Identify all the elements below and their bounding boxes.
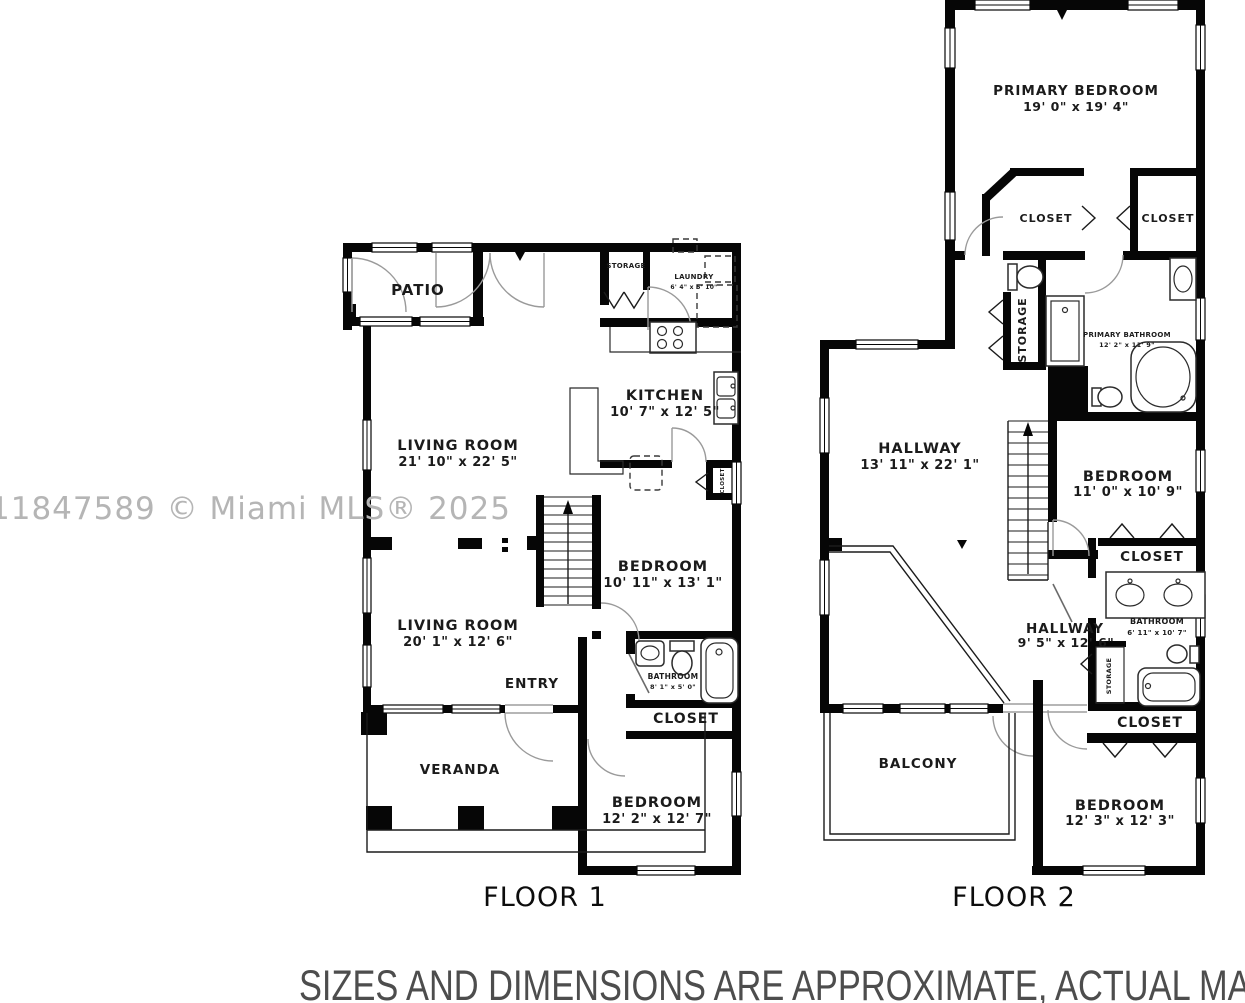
room-label-patio: PATIO (391, 281, 445, 299)
room-label-laundry: LAUNDRY (674, 273, 714, 281)
floorplan-image: PATIO STORAGE LAUNDRY 6' 4" x 5' 10" KIT… (0, 0, 1245, 1003)
room-dims-bathroom-f2: 6' 11" x 10' 7" (1127, 629, 1187, 637)
floor2-title: FLOOR 2 (952, 882, 1076, 913)
room-label-bathroom-f1: BATHROOM (648, 672, 699, 681)
room-label-closet-kitchen: CLOSET (720, 468, 726, 493)
room-dims-primary-bedroom: 19' 0" x 19' 4" (1023, 99, 1129, 114)
room-dims-hallway-small: 9' 5" x 12' 6" (1018, 635, 1115, 650)
room-label-living-lower: LIVING ROOM (397, 618, 519, 634)
room-dims-bedroom-mid-f2: 11' 0" x 10' 9" (1073, 485, 1183, 500)
room-label-closet-f1: CLOSET (653, 711, 719, 727)
room-label-storage-bath: STORAGE (1016, 297, 1029, 362)
wall-tick (515, 252, 525, 261)
room-label-primary-bedroom: PRIMARY BEDROOM (993, 83, 1159, 99)
floor2-walls (820, 0, 1205, 875)
room-label-veranda: VERANDA (420, 762, 500, 778)
room-dims-bedroom-bottom-f2: 12' 3" x 12' 3" (1065, 814, 1175, 829)
room-label-living-upper: LIVING ROOM (397, 438, 519, 454)
floor2-stairs (1008, 421, 1048, 580)
floor2-balcony-outline (824, 713, 1015, 840)
room-label-balcony: BALCONY (879, 756, 958, 772)
floor1-title: FLOOR 1 (483, 882, 607, 913)
room-dims-hallway-main: 13' 11" x 22' 1" (860, 458, 979, 473)
room-label-bedroom-mid-f1: BEDROOM (618, 559, 708, 575)
disclaimer-text: SIZES AND DIMENSIONS ARE APPROXIMATE, AC… (299, 962, 1245, 1003)
room-dims-bathroom-f1: 8' 1" x 5' 0" (650, 683, 696, 691)
floor1-stairs (544, 497, 592, 605)
room-label-closet-left: CLOSET (1020, 212, 1073, 225)
room-label-primary-bathroom: PRIMARY BATHROOM (1083, 331, 1171, 339)
wall-tick (957, 540, 967, 549)
room-label-storage-f1: STORAGE (606, 262, 645, 270)
room-label-closet-bottom: CLOSET (1117, 715, 1183, 731)
room-dims-living-lower: 20' 1" x 12' 6" (403, 635, 513, 650)
floor1-plan: PATIO STORAGE LAUNDRY 6' 4" x 5' 10" KIT… (343, 239, 741, 875)
room-label-hallway-main: HALLWAY (878, 441, 961, 457)
room-dims-bedroom-bottom-f1: 12' 2" x 12' 7" (602, 812, 712, 827)
floor2-hallway-opening (829, 546, 1010, 703)
room-dims-bedroom-mid-f1: 10' 11" x 13' 1" (603, 576, 722, 591)
mls-watermark: 11847589 © Miami MLS® 2025 (0, 491, 511, 527)
room-label-bedroom-bottom-f1: BEDROOM (612, 795, 702, 811)
room-dims-living-upper: 21' 10" x 22' 5" (398, 455, 517, 470)
floor2-plan: PRIMARY BEDROOM 19' 0" x 19' 4" CLOSET C… (820, 0, 1205, 875)
room-label-bedroom-mid-f2: BEDROOM (1083, 469, 1173, 485)
room-label-storage-small: STORAGE (1105, 658, 1113, 695)
room-dims-kitchen: 10' 7" x 12' 5" (610, 405, 720, 420)
room-label-bedroom-bottom-f2: BEDROOM (1075, 798, 1165, 814)
wall-tick (1057, 10, 1067, 20)
room-label-closet-mid: CLOSET (1120, 549, 1184, 565)
room-dims-primary-bathroom: 12' 2" x 11' 9" (1099, 341, 1155, 349)
room-label-bathroom-f2: BATHROOM (1130, 617, 1184, 626)
floorplan-canvas: PATIO STORAGE LAUNDRY 6' 4" x 5' 10" KIT… (0, 0, 1245, 1003)
room-dims-laundry: 6' 4" x 5' 10" (670, 284, 717, 291)
room-label-entry: ENTRY (505, 676, 559, 692)
room-label-kitchen: KITCHEN (626, 388, 704, 404)
room-label-closet-right: CLOSET (1142, 212, 1195, 225)
floor2-windows (820, 0, 1205, 875)
